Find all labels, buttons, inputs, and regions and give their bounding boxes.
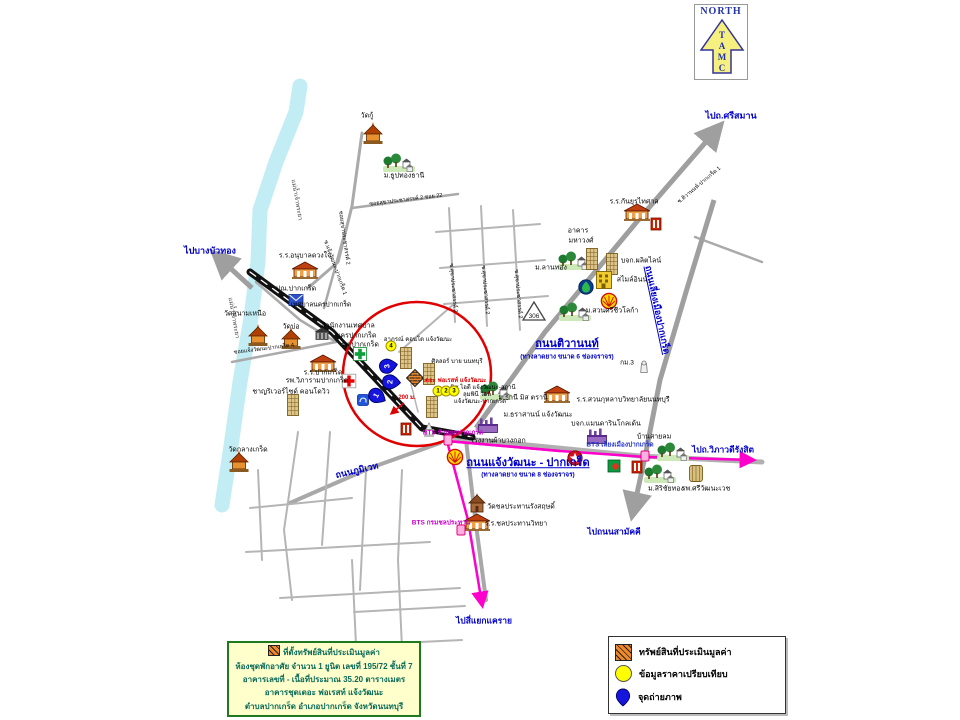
- map-label: ซอยสุขาประชาสรรค์ 2 ซอย 22: [369, 194, 443, 209]
- village-icon: [644, 464, 676, 484]
- bts-station-icon: [457, 525, 466, 536]
- north-arrow-icon: T A M C: [695, 17, 749, 77]
- info-box-line: อาคารเลขที่ - เนื้อที่ประมาณ 35.20 ตาราง…: [230, 673, 418, 686]
- tower-icon: [586, 248, 599, 271]
- property-info-box: ที่ตั้งทรัพย์สินที่ประเมินมูลค่า ห้องชุด…: [227, 641, 421, 717]
- map-canvas: 306 ไปถ.ศรีสมานไปบางบัวทองไปถ.วิภาวดีรัง…: [0, 0, 960, 720]
- map-label: บจก.ผลิตไลน์: [621, 257, 661, 264]
- map-label: เดอะ ฟอเรสท์ แจ้งวัฒนะ: [423, 378, 486, 384]
- map-label: บจก.แมนดารินโกลเด้น: [571, 420, 641, 427]
- map-label: รพ.ปากเกร็ด: [341, 341, 379, 348]
- map-label: ลุมพินี วิลล์: [463, 392, 491, 398]
- legend-label: ทรัพย์สินที่ประเมินมูลค่า: [639, 645, 732, 659]
- map-label: วัดชลประทานรังสฤษดิ์: [487, 503, 555, 510]
- ptt-icon: [578, 279, 594, 295]
- map-label: ม.ธูปทองธานี: [384, 172, 425, 179]
- svg-text:A: A: [719, 41, 726, 51]
- legend-label: จุดถ่ายภาพ: [638, 690, 682, 704]
- map-label: ซอยแจ้งวัฒนะปากเกร็ด 4: [234, 343, 295, 356]
- svg-text:M: M: [718, 52, 727, 62]
- svg-text:T: T: [719, 30, 725, 40]
- map-label: กม.3: [620, 361, 634, 368]
- map-label: ถนนติวานนท์: [535, 339, 599, 351]
- map-label: ม.ธราสานน์ แจ้งวัฒนะ: [503, 411, 572, 418]
- map-label: (ทางลาดยาง ขนาด 8 ช่องจราจร): [481, 473, 574, 480]
- bts-station-icon: [444, 435, 453, 446]
- map-label: BTS เลี่ยงเมืองปากเกร็ด: [586, 443, 653, 450]
- map-label: รพ.วิภารามปากเกร็ด: [286, 377, 349, 384]
- map-label: มหาวงศ์: [569, 237, 594, 244]
- village-icon: [657, 442, 689, 462]
- legend-item-property: ทรัพย์สินที่ประเมินมูลค่า: [615, 644, 779, 661]
- redbox-icon: [401, 423, 412, 436]
- map-label: แจ้งวัฒนะ-ปากเกร็ด: [454, 399, 506, 405]
- map-label: แม่น้ำเจ้าพระยา: [226, 297, 239, 339]
- temple2-icon: [466, 493, 488, 515]
- map-label: นครปากเกร็ด: [336, 332, 377, 339]
- map-label: ซ.สุขาประชาสรรค์ 2: [447, 263, 457, 313]
- map-label: ซ.สุขาประชาสรรค์ 2: [479, 265, 489, 315]
- map-label: บ้านสายลม: [637, 433, 671, 440]
- school-icon: [623, 203, 651, 221]
- map-label: ไปถนนสามัคคี: [587, 528, 640, 537]
- info-box-line: ตำบลปากเกร็ด อำเภอปากเกร็ด จังหวัดนนทบุร…: [230, 700, 418, 713]
- school-icon: [291, 261, 319, 279]
- map-label: ศิลลอร์ บาย นนทบุรี: [431, 359, 482, 365]
- info-box-line: ห้องชุดพักอาศัย จำนวน 1 ยูนิต เลขที่ 195…: [230, 660, 418, 673]
- map-label: BTS ห้าแยกปากเกร็ด: [423, 431, 483, 438]
- map-label: ร.ร.อนุบาลดวงใจ: [279, 252, 331, 259]
- map-label: ไปสี่แยกแคราย: [456, 617, 512, 626]
- info-box-title-text: ที่ตั้งทรัพย์สินที่ประเมินมูลค่า: [283, 648, 380, 657]
- comparable-legend-icon: [615, 665, 632, 682]
- redbox-icon: [632, 461, 643, 474]
- map-label: ม.สิริชัยทอง: [648, 485, 684, 492]
- map-label: 200 ม.: [398, 395, 415, 401]
- map-label: เทศบาลนครปากเกร็ด: [291, 303, 351, 310]
- photo-point-marker: 3: [376, 356, 400, 376]
- comparison-point-marker: 4: [386, 341, 397, 352]
- svg-text:2: 2: [385, 379, 394, 384]
- comparison-point-marker: 3: [449, 386, 460, 397]
- map-label: ม.สวนศรีชีวโลก้า: [586, 307, 639, 314]
- map-label: ไปถ.วิภาวดีรังสิต: [692, 446, 754, 455]
- map-label: สำนักงานเทศบาล: [321, 322, 374, 329]
- svg-text:C: C: [719, 63, 726, 73]
- milestone-icon: [640, 361, 649, 374]
- temple-icon: [245, 324, 271, 348]
- map-label: วัดสนามเหนือ: [224, 310, 266, 317]
- map-legend: ทรัพย์สินที่ประเมินมูลค่า ข้อมูลราคาเปรี…: [608, 636, 786, 714]
- map-label: (ทางลาดยาง ขนาด 6 ช่องจราจร): [520, 355, 613, 362]
- map-label: ไปถ.ศรีสมาน: [705, 111, 756, 120]
- tower-icon: [426, 396, 439, 419]
- shell-icon: [447, 449, 464, 466]
- map-label: ชาญริเวอร์ไซด์ คอนโดวิว: [252, 388, 329, 395]
- compass-north-label: NORTH: [695, 6, 747, 17]
- info-box-line: อาคารชุดเดอะ ฟอเรสท์ แจ้งวัฒนะ: [230, 686, 418, 699]
- map-label: ซ.ติวานนท์-ปากเกร็ด 1: [677, 166, 722, 205]
- map-label: ถนนภูมิเวท: [335, 461, 380, 480]
- greenlogo-icon: [608, 460, 621, 473]
- legend-item-comparable: ข้อมูลราคาเปรียบเทียบ: [615, 665, 779, 682]
- map-label: นิช ไอดี แจ้งวัฒนะ-สถานี: [450, 385, 515, 391]
- map-label: ร.ร.กันยุรไทศาล: [609, 198, 658, 205]
- photo-point-legend-icon: [615, 687, 631, 707]
- redbox-icon: [651, 218, 662, 231]
- property-hatch-icon: [268, 645, 280, 656]
- map-label: ซอยสุขาประชาสรรค์ 2: [336, 211, 349, 265]
- compass-rose: NORTH T A M C: [694, 4, 748, 80]
- map-label: วัดกลางเกร็ด: [228, 446, 267, 453]
- village-icon: [383, 153, 415, 173]
- map-label: วัดบ่อ: [282, 323, 299, 330]
- map-label: ไปบางบัวทอง: [184, 246, 236, 255]
- map-overlay-layer: ไปถ.ศรีสมานไปบางบัวทองไปถ.วิภาวดีรังสิตไ…: [0, 0, 960, 720]
- tower-icon: [400, 347, 413, 370]
- map-label: อาคาร: [568, 227, 589, 234]
- map-label: รพ.ศรีวัฒนะเวช: [682, 485, 730, 492]
- map-label: ถนนแจ้งวัฒนะ - ปากเกร็ด: [466, 458, 589, 470]
- map-label: ซ.สุขาประชาสรรค์ 2: [512, 269, 522, 319]
- legend-label: ข้อมูลราคาเปรียบเทียบ: [639, 667, 728, 681]
- map-label: วัดกู้: [361, 112, 374, 119]
- map-label: ร.ร.ปากเกร็ด: [304, 369, 343, 376]
- map-label: โรงงานผ้าบางกอก: [470, 437, 526, 444]
- map-label: ม.ลานทอง: [535, 264, 567, 271]
- greencross-icon: [353, 347, 367, 361]
- map-label: ร.ร.ชลประทานวิทยา: [485, 520, 547, 527]
- map-label: แม่น้ำเจ้าพระยา: [289, 179, 302, 221]
- info-box-title: ที่ตั้งทรัพย์สินที่ประเมินมูลค่า: [230, 645, 418, 659]
- bts-station-icon: [641, 451, 650, 462]
- map-label: สไมล์อินน์: [617, 276, 647, 283]
- cylinder-icon: [689, 464, 704, 483]
- yellowbldg-icon: [596, 271, 613, 290]
- property-legend-icon: [615, 644, 632, 661]
- temple-icon: [360, 122, 386, 146]
- tower-icon: [287, 394, 300, 417]
- legend-item-photo: จุดถ่ายภาพ: [615, 687, 779, 707]
- map-label: ร.ร.สวนกุหลาบวิทยาลัยนนทบุรี: [576, 396, 669, 403]
- map-label: ปณ.ปากเกร็ด: [276, 285, 316, 292]
